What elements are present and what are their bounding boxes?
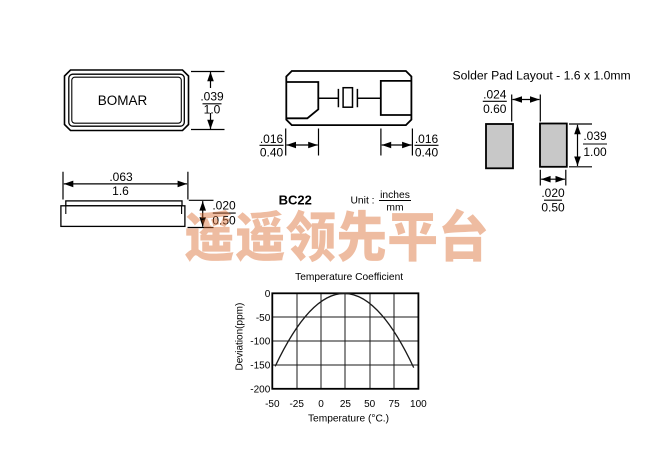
svg-text:75: 75 xyxy=(389,399,401,410)
svg-text:1.0: 1.0 xyxy=(204,103,221,117)
svg-text:-50: -50 xyxy=(256,313,271,324)
svg-text:0.40: 0.40 xyxy=(260,146,284,160)
svg-text:0: 0 xyxy=(265,289,271,300)
svg-text:0.60: 0.60 xyxy=(483,102,507,116)
svg-text:.020: .020 xyxy=(541,186,565,200)
svg-text:mm: mm xyxy=(386,203,403,214)
svg-text:.016: .016 xyxy=(415,132,439,146)
svg-text:inches: inches xyxy=(380,190,410,201)
svg-text:.039: .039 xyxy=(583,129,607,143)
svg-text:100: 100 xyxy=(410,399,427,410)
svg-text:.016: .016 xyxy=(260,132,284,146)
svg-text:Solder Pad Layout - 1.6 x 1.0m: Solder Pad Layout - 1.6 x 1.0mm xyxy=(453,68,631,82)
svg-text:1.00: 1.00 xyxy=(583,145,607,159)
svg-text:Deviation(ppm): Deviation(ppm) xyxy=(235,303,246,371)
svg-text:-25: -25 xyxy=(289,399,304,410)
svg-text:1.6: 1.6 xyxy=(112,184,129,198)
svg-text:BC22: BC22 xyxy=(279,193,312,208)
svg-text:-100: -100 xyxy=(250,337,270,348)
svg-text:0.50: 0.50 xyxy=(541,201,565,215)
svg-text:-200: -200 xyxy=(250,384,270,395)
svg-text:Unit :: Unit : xyxy=(351,195,375,206)
svg-text:.039: .039 xyxy=(200,90,224,104)
svg-text:Temperature (°C.): Temperature (°C.) xyxy=(308,414,389,425)
svg-text:25: 25 xyxy=(340,399,352,410)
svg-text:50: 50 xyxy=(364,399,376,410)
svg-text:0.40: 0.40 xyxy=(415,146,439,160)
svg-text:.063: .063 xyxy=(109,170,133,184)
svg-text:.024: .024 xyxy=(483,88,507,102)
svg-text:-50: -50 xyxy=(265,399,280,410)
svg-text:-150: -150 xyxy=(250,361,270,372)
svg-text:Temperature Coefficient: Temperature Coefficient xyxy=(295,272,403,283)
svg-text:BOMAR: BOMAR xyxy=(98,93,148,108)
svg-text:0: 0 xyxy=(318,399,324,410)
